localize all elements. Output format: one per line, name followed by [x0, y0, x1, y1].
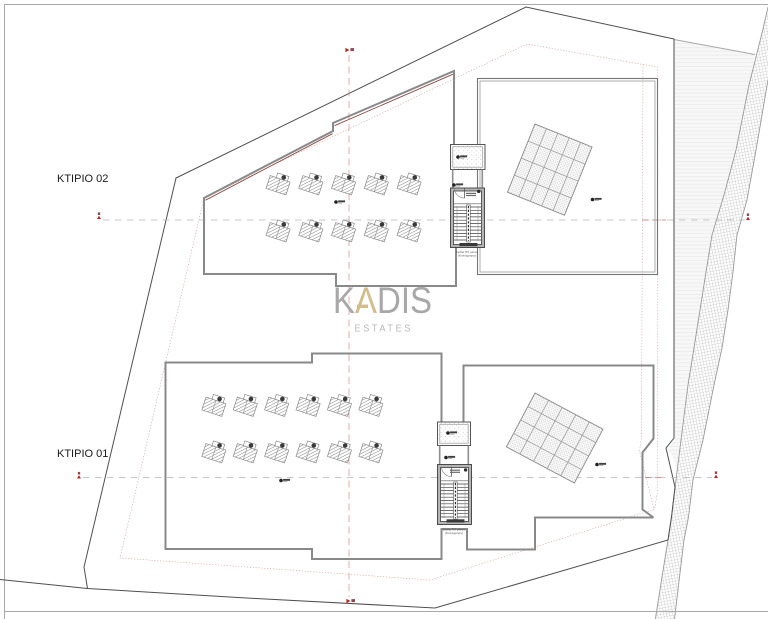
svg-text:ESTATES: ESTATES: [355, 323, 414, 335]
svg-text:KTIPIO 01: KTIPIO 01: [57, 448, 108, 460]
svg-text:KTIPIO 02: KTIPIO 02: [57, 173, 108, 185]
svg-text:(Κοινόχρηση): (Κοινόχρηση): [458, 254, 476, 258]
svg-text:(Κοινόχρηση): (Κοινόχρηση): [445, 531, 463, 535]
